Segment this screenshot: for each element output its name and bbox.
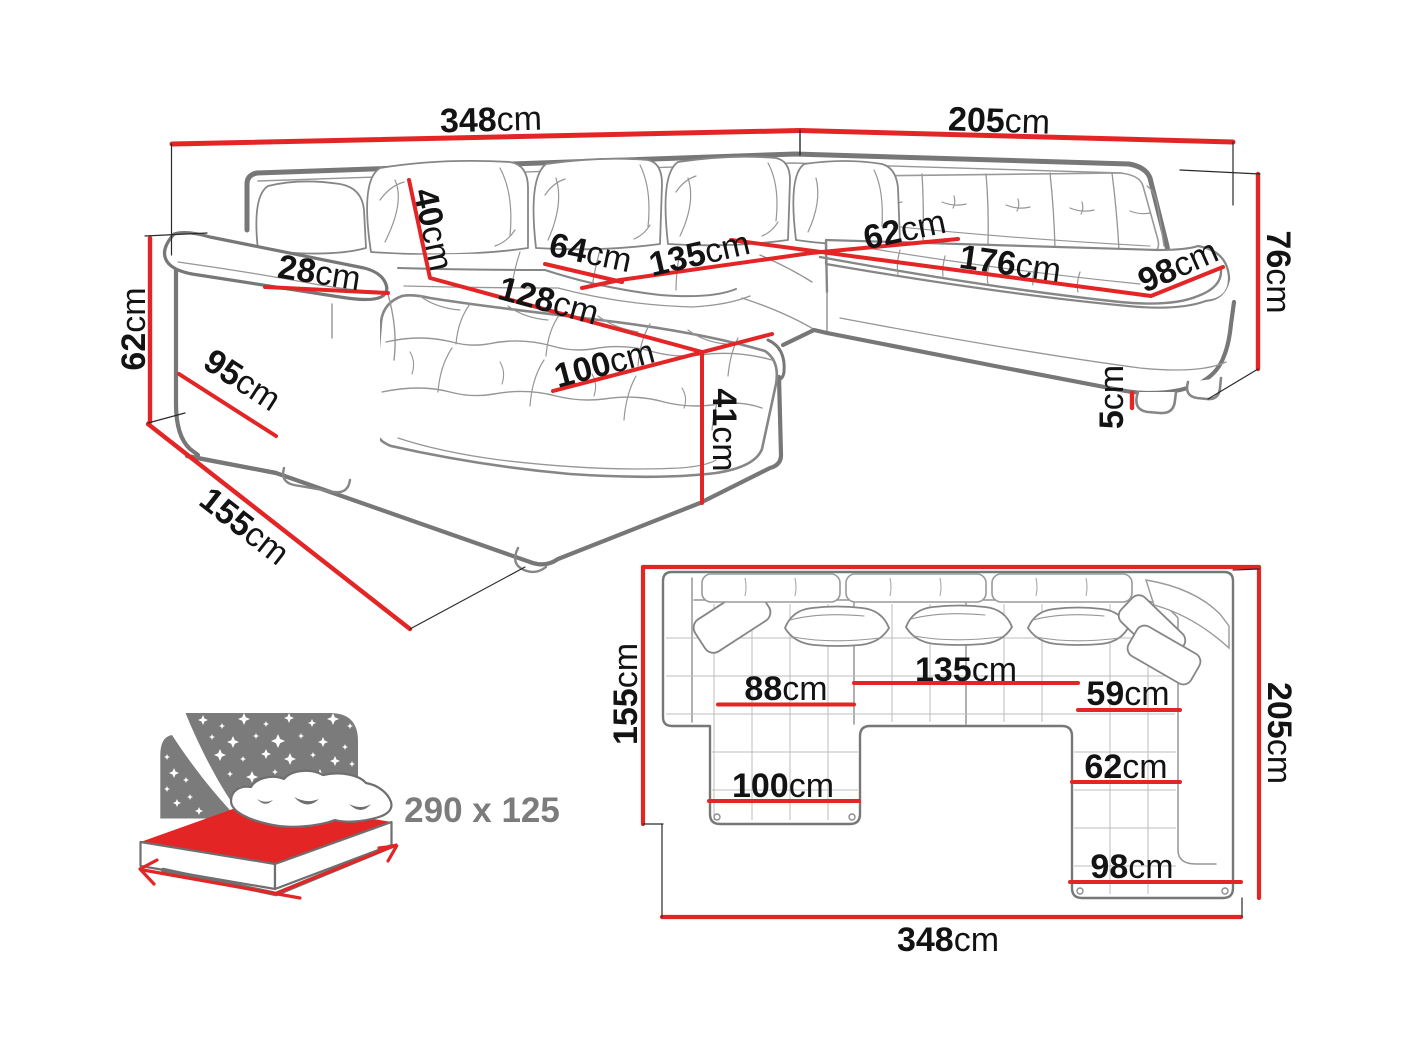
svg-text:88cm: 88cm: [744, 670, 827, 708]
svg-text:205cm: 205cm: [947, 100, 1050, 141]
svg-text:62cm: 62cm: [115, 287, 153, 370]
svg-text:100cm: 100cm: [732, 767, 834, 805]
svg-text:155cm: 155cm: [607, 643, 645, 745]
svg-text:98cm: 98cm: [1090, 848, 1173, 886]
svg-text:348cm: 348cm: [897, 921, 999, 959]
svg-text:5cm: 5cm: [1093, 365, 1131, 429]
svg-text:205cm: 205cm: [1260, 682, 1298, 784]
svg-text:290 x 125: 290 x 125: [404, 791, 560, 830]
svg-text:41cm: 41cm: [705, 388, 743, 471]
svg-text:59cm: 59cm: [1086, 675, 1169, 713]
svg-text:62cm: 62cm: [1084, 748, 1167, 786]
svg-text:135cm: 135cm: [915, 651, 1017, 689]
svg-text:76cm: 76cm: [1259, 230, 1297, 313]
svg-text:348cm: 348cm: [439, 100, 542, 141]
